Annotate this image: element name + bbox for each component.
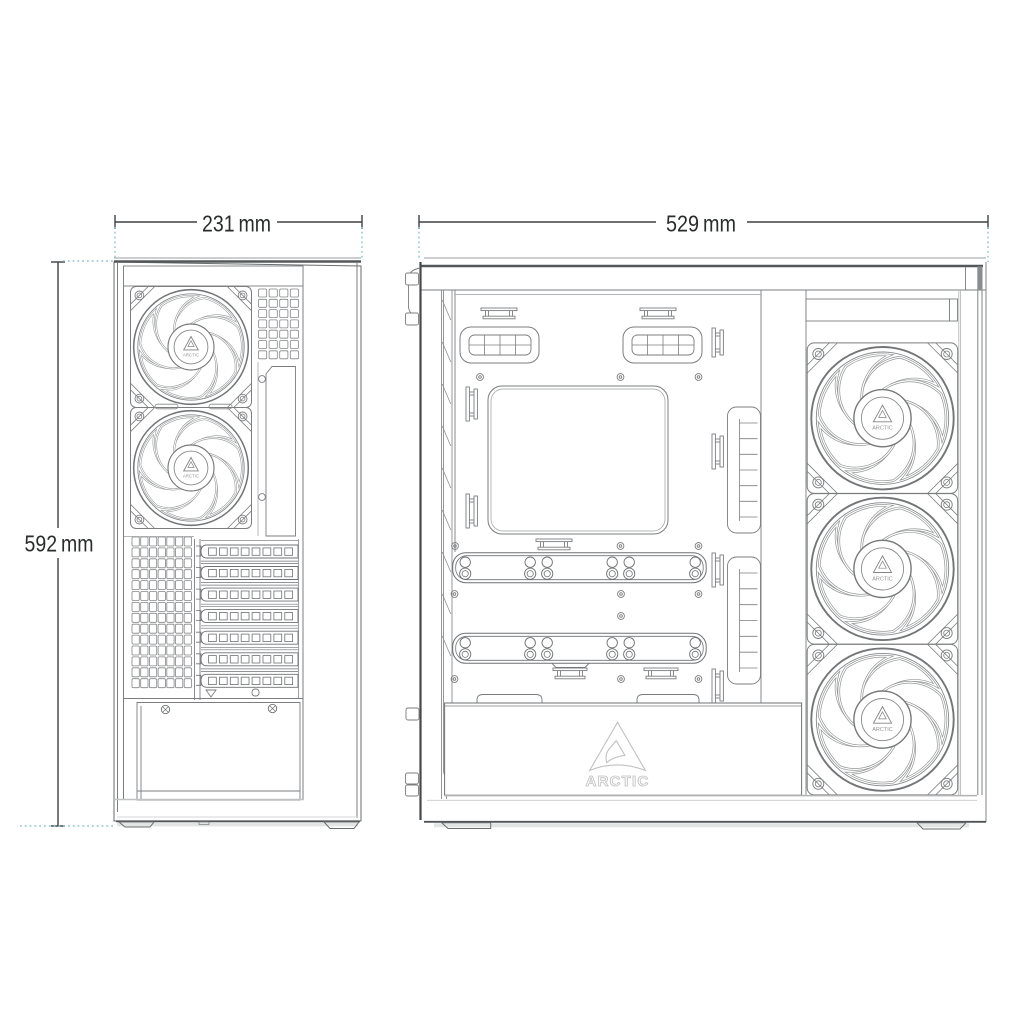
svg-text:ARCTIC: ARCTIC <box>872 426 893 432</box>
svg-text:ARCTIC: ARCTIC <box>183 473 199 478</box>
svg-text:ARCTIC: ARCTIC <box>872 576 893 582</box>
svg-text:ARCTIC: ARCTIC <box>872 727 893 733</box>
svg-text:231 mm: 231 mm <box>202 211 271 237</box>
svg-text:529 mm: 529 mm <box>666 211 736 237</box>
svg-text:ARCTIC: ARCTIC <box>183 352 199 357</box>
svg-text:592 mm: 592 mm <box>25 531 94 557</box>
svg-text:ARCTIC: ARCTIC <box>586 773 650 790</box>
